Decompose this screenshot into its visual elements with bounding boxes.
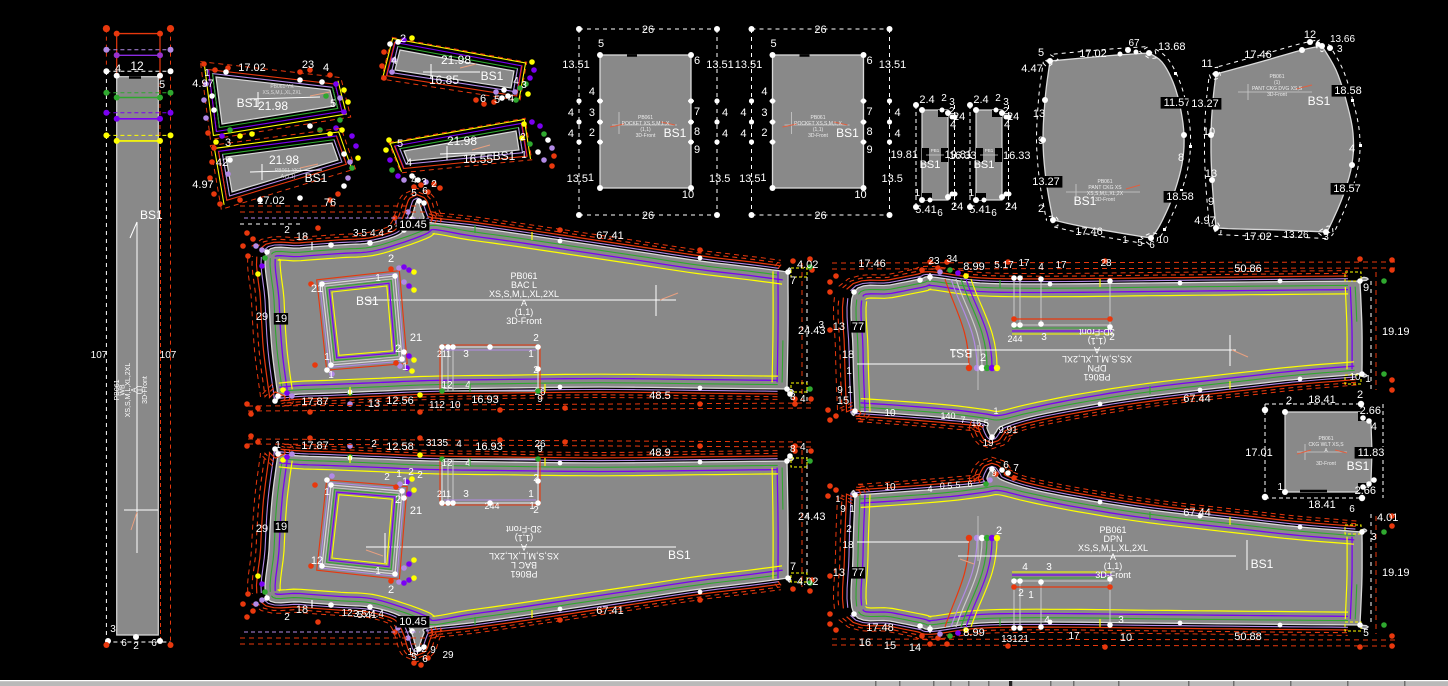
- svg-text:13: 13: [1033, 108, 1045, 120]
- svg-text:17.46: 17.46: [1075, 226, 1103, 238]
- svg-text:3: 3: [818, 320, 824, 331]
- svg-text:9: 9: [840, 504, 846, 515]
- svg-text:67: 67: [1128, 38, 1140, 49]
- svg-text:2: 2: [1038, 203, 1044, 215]
- svg-text:3: 3: [1046, 562, 1052, 573]
- svg-text:10: 10: [884, 408, 896, 419]
- svg-text:3D-Front: 3D-Front: [142, 376, 149, 404]
- svg-text:211: 211: [437, 349, 451, 359]
- svg-text:26: 26: [642, 24, 654, 36]
- svg-text:1: 1: [275, 440, 281, 451]
- svg-text:6: 6: [694, 55, 700, 67]
- svg-text:2: 2: [995, 93, 1001, 104]
- svg-text:BS1: BS1: [1347, 459, 1370, 473]
- svg-text:12: 12: [441, 458, 453, 469]
- svg-text:2: 2: [371, 439, 377, 450]
- svg-text:13.51: 13.51: [879, 59, 907, 71]
- svg-text:1: 1: [528, 489, 534, 500]
- svg-text:17.01: 17.01: [1245, 447, 1273, 459]
- svg-text:BS1: BS1: [1308, 94, 1331, 108]
- svg-text:29: 29: [256, 523, 268, 535]
- svg-text:19.19: 19.19: [1382, 326, 1410, 338]
- svg-text:6: 6: [1149, 240, 1155, 251]
- svg-text:3: 3: [463, 489, 469, 500]
- svg-text:4: 4: [1349, 143, 1355, 155]
- svg-text:4.97: 4.97: [1194, 215, 1215, 227]
- svg-text:244: 244: [1007, 334, 1022, 344]
- svg-text:7: 7: [694, 106, 700, 118]
- svg-text:8.99: 8.99: [963, 627, 984, 639]
- svg-text:4: 4: [722, 107, 728, 119]
- svg-text:24: 24: [951, 201, 963, 213]
- svg-text:19.81: 19.81: [944, 149, 972, 161]
- svg-text:67.44: 67.44: [1183, 393, 1211, 405]
- svg-text:18: 18: [842, 540, 854, 551]
- svg-text:10: 10: [1349, 372, 1361, 383]
- svg-text:1: 1: [204, 68, 210, 79]
- svg-text:4: 4: [761, 86, 767, 98]
- svg-text:5.41: 5.41: [915, 204, 936, 216]
- svg-text:23: 23: [928, 256, 940, 267]
- svg-text:77: 77: [852, 567, 864, 579]
- svg-text:1: 1: [521, 150, 527, 161]
- svg-text:12: 12: [341, 608, 353, 619]
- svg-text:34: 34: [946, 254, 958, 265]
- svg-text:14: 14: [909, 642, 921, 654]
- svg-text:4: 4: [1022, 562, 1028, 573]
- svg-text:4: 4: [115, 63, 121, 75]
- svg-text:3: 3: [521, 80, 527, 91]
- svg-text:5: 5: [598, 38, 604, 50]
- svg-text:4: 4: [589, 86, 595, 98]
- svg-text:BS1: BS1: [140, 208, 163, 222]
- svg-text:2: 2: [980, 352, 986, 364]
- svg-text:BS1: BS1: [305, 171, 328, 185]
- svg-text:28: 28: [1100, 258, 1112, 269]
- svg-text:BS1: BS1: [974, 159, 995, 171]
- svg-text:16.93: 16.93: [475, 441, 503, 453]
- svg-text:13.27: 13.27: [1032, 176, 1060, 188]
- svg-text:13.5: 13.5: [567, 173, 588, 185]
- svg-text:5: 5: [770, 38, 776, 50]
- svg-text:A (1,1): A (1,1): [281, 174, 296, 180]
- svg-text:5.41: 5.41: [969, 204, 990, 216]
- svg-text:17.02: 17.02: [1079, 48, 1107, 60]
- svg-text:18: 18: [296, 231, 308, 243]
- svg-text:6: 6: [121, 638, 127, 649]
- svg-text:26: 26: [814, 210, 826, 222]
- svg-text:2.66: 2.66: [1360, 405, 1381, 417]
- svg-text:2: 2: [284, 612, 290, 623]
- svg-text:1: 1: [846, 366, 852, 377]
- svg-text:6: 6: [480, 93, 486, 105]
- svg-text:3: 3: [1337, 44, 1343, 55]
- svg-text:5: 5: [1137, 238, 1143, 249]
- svg-text:21.98: 21.98: [269, 153, 299, 167]
- svg-text:4: 4: [800, 394, 806, 405]
- svg-text:2: 2: [941, 93, 947, 104]
- svg-text:67.44: 67.44: [1183, 507, 1211, 519]
- svg-text:2: 2: [387, 224, 393, 235]
- svg-text:4.01: 4.01: [1377, 512, 1398, 524]
- svg-text:16.55: 16.55: [463, 152, 493, 166]
- svg-text:112: 112: [429, 400, 445, 411]
- svg-text:4: 4: [895, 107, 901, 119]
- svg-text:17.02: 17.02: [257, 195, 285, 207]
- svg-text:BS1: BS1: [493, 149, 516, 163]
- svg-text:3: 3: [225, 137, 231, 149]
- svg-text:12: 12: [441, 380, 453, 391]
- svg-text:4: 4: [722, 128, 728, 140]
- svg-text:3: 3: [761, 107, 767, 119]
- svg-text:1: 1: [1122, 235, 1128, 246]
- svg-text:3D-Front: 3D-Front: [636, 133, 656, 139]
- svg-text:5.17: 5.17: [994, 260, 1014, 271]
- svg-text:3D-Front: 3D-Front: [808, 133, 828, 139]
- svg-text:1: 1: [968, 188, 974, 199]
- svg-text:9: 9: [1038, 135, 1044, 147]
- svg-text:21: 21: [311, 283, 323, 295]
- svg-text:2: 2: [421, 644, 427, 655]
- svg-text:1: 1: [1028, 590, 1034, 601]
- svg-text:6: 6: [991, 208, 997, 219]
- svg-text:19: 19: [275, 313, 287, 325]
- svg-text:9.91: 9.91: [998, 425, 1018, 436]
- svg-text:13.66: 13.66: [1330, 34, 1355, 45]
- svg-text:4: 4: [391, 55, 397, 67]
- svg-text:13.51: 13.51: [562, 59, 590, 71]
- svg-text:1: 1: [760, 172, 766, 184]
- svg-text:BS1: BS1: [1251, 557, 1274, 571]
- svg-text:17.02: 17.02: [238, 62, 266, 74]
- svg-text:1: 1: [849, 504, 855, 515]
- svg-text:4.97: 4.97: [192, 179, 213, 191]
- svg-text:17.48: 17.48: [866, 622, 894, 634]
- svg-text:2: 2: [431, 179, 437, 190]
- svg-text:17.02: 17.02: [1244, 231, 1272, 243]
- svg-text:21.98: 21.98: [441, 53, 471, 67]
- svg-text:17.87: 17.87: [301, 440, 329, 452]
- svg-text:7: 7: [790, 561, 796, 573]
- svg-text:2: 2: [133, 641, 139, 652]
- svg-text:PB1: PB1: [985, 148, 994, 153]
- svg-text:16.5: 16.5: [971, 418, 989, 428]
- svg-text:26: 26: [814, 24, 826, 36]
- svg-text:5.41: 5.41: [357, 610, 377, 621]
- svg-text:2: 2: [589, 127, 595, 139]
- svg-text:18.41: 18.41: [1308, 499, 1336, 511]
- svg-text:4.02: 4.02: [797, 576, 818, 588]
- svg-text:18.58: 18.58: [1166, 191, 1194, 203]
- svg-text:1: 1: [375, 273, 381, 284]
- svg-text:11: 11: [1201, 58, 1212, 70]
- svg-text:12: 12: [130, 59, 144, 73]
- svg-text:4.02: 4.02: [797, 259, 818, 271]
- svg-text:2: 2: [533, 333, 539, 344]
- svg-text:6: 6: [967, 479, 972, 489]
- svg-text:9: 9: [867, 144, 873, 156]
- svg-text:12.56: 12.56: [386, 395, 414, 407]
- svg-text:6: 6: [422, 186, 428, 197]
- svg-text:1: 1: [375, 566, 381, 577]
- svg-text:29: 29: [442, 650, 454, 661]
- svg-text:13.68: 13.68: [1158, 41, 1186, 53]
- svg-text:107: 107: [91, 350, 108, 361]
- svg-text:3.5: 3.5: [353, 228, 367, 239]
- svg-text:8: 8: [1178, 152, 1184, 164]
- svg-text:18: 18: [842, 349, 854, 361]
- svg-text:17.46: 17.46: [1244, 49, 1272, 61]
- svg-text:6: 6: [1349, 504, 1355, 515]
- svg-text:4: 4: [800, 442, 806, 453]
- svg-text:21.98: 21.98: [447, 134, 477, 148]
- svg-text:10: 10: [1120, 632, 1132, 644]
- svg-text:17: 17: [1018, 258, 1030, 269]
- svg-text:1: 1: [396, 469, 402, 480]
- svg-text:4: 4: [456, 439, 462, 450]
- svg-text:8: 8: [790, 392, 796, 403]
- svg-text:21: 21: [410, 332, 422, 344]
- svg-text:15: 15: [837, 395, 849, 407]
- svg-text:2: 2: [388, 253, 394, 265]
- svg-text:4: 4: [406, 157, 412, 169]
- svg-text:9: 9: [694, 144, 700, 156]
- svg-text:2: 2: [1286, 395, 1292, 407]
- svg-text:PB1: PB1: [931, 148, 940, 153]
- svg-text:11.83: 11.83: [1358, 447, 1385, 459]
- svg-text:4: 4: [895, 128, 901, 140]
- svg-text:107: 107: [160, 350, 177, 361]
- svg-text:7: 7: [1013, 463, 1019, 474]
- svg-text:6: 6: [151, 638, 157, 649]
- svg-text:2: 2: [284, 225, 290, 236]
- svg-text:10.45: 10.45: [399, 219, 427, 231]
- svg-text:13.5: 13.5: [882, 173, 903, 185]
- svg-text:10: 10: [884, 482, 896, 493]
- svg-text:18: 18: [296, 604, 308, 616]
- svg-text:6: 6: [422, 654, 428, 665]
- svg-text:1: 1: [529, 501, 535, 512]
- svg-text:3: 3: [463, 349, 469, 360]
- svg-text:5: 5: [411, 188, 417, 199]
- svg-text:42: 42: [216, 157, 228, 169]
- svg-text:8: 8: [867, 126, 873, 138]
- svg-text:2: 2: [1357, 389, 1363, 401]
- svg-text:50.88: 50.88: [1234, 631, 1262, 643]
- svg-text:3D-Front: 3D-Front: [506, 316, 542, 326]
- svg-text:10: 10: [682, 189, 694, 201]
- svg-text:1: 1: [993, 406, 998, 416]
- svg-text:3: 3: [1118, 615, 1124, 626]
- svg-text:1: 1: [328, 370, 334, 381]
- svg-text:19.81: 19.81: [890, 149, 918, 161]
- svg-text:BS1: BS1: [836, 126, 859, 140]
- svg-text:13.27: 13.27: [1191, 98, 1219, 110]
- svg-text:3: 3: [1323, 232, 1329, 243]
- svg-text:2: 2: [1018, 588, 1024, 599]
- svg-text:17.46: 17.46: [858, 258, 886, 270]
- svg-text:BS1: BS1: [949, 346, 972, 360]
- svg-text:13: 13: [833, 321, 845, 333]
- svg-text:3135: 3135: [426, 438, 449, 449]
- svg-text:24: 24: [1005, 201, 1017, 213]
- svg-text:4: 4: [568, 107, 574, 119]
- svg-text:4: 4: [740, 128, 746, 140]
- svg-text:6: 6: [937, 208, 943, 219]
- svg-text:9: 9: [537, 394, 543, 405]
- svg-text:13.51: 13.51: [735, 59, 763, 71]
- svg-text:2: 2: [846, 524, 852, 535]
- svg-text:5: 5: [1038, 47, 1044, 59]
- svg-text:4.4: 4.4: [370, 228, 384, 239]
- svg-text:76: 76: [324, 197, 336, 209]
- svg-text:3D-Front: 3D-Front: [1267, 92, 1287, 98]
- svg-text:244: 244: [484, 501, 499, 511]
- svg-text:16: 16: [859, 637, 871, 649]
- svg-text:BS1: BS1: [481, 69, 504, 83]
- svg-text:1: 1: [588, 172, 594, 184]
- svg-text:BS1: BS1: [664, 126, 687, 140]
- svg-text:4: 4: [513, 76, 519, 87]
- svg-text:29: 29: [256, 311, 268, 323]
- svg-text:2: 2: [996, 525, 1002, 537]
- svg-text:4: 4: [508, 93, 514, 105]
- svg-text:4: 4: [1038, 262, 1044, 273]
- svg-text:8.99: 8.99: [963, 261, 984, 273]
- svg-text:5: 5: [397, 138, 403, 150]
- svg-text:48.5: 48.5: [649, 390, 670, 402]
- svg-text:1: 1: [835, 494, 840, 504]
- svg-text:13: 13: [368, 398, 380, 410]
- svg-text:1: 1: [324, 352, 330, 363]
- svg-text:3: 3: [1371, 532, 1377, 543]
- svg-text:2.66: 2.66: [1355, 485, 1376, 497]
- svg-text:2: 2: [417, 470, 423, 481]
- svg-text:1: 1: [324, 487, 330, 498]
- svg-text:23: 23: [302, 59, 314, 71]
- svg-text:2: 2: [533, 473, 539, 484]
- svg-text:26: 26: [642, 210, 654, 222]
- svg-text:18.57: 18.57: [1333, 183, 1361, 195]
- svg-text:10: 10: [449, 400, 461, 411]
- svg-text:48.9: 48.9: [649, 447, 670, 459]
- svg-text:5: 5: [330, 98, 336, 110]
- svg-text:13.5: 13.5: [709, 173, 730, 185]
- svg-text:1: 1: [528, 349, 534, 360]
- svg-text:1: 1: [1277, 482, 1283, 493]
- svg-text:5: 5: [159, 79, 165, 91]
- svg-text:4.47: 4.47: [1021, 63, 1042, 75]
- svg-text:12.58: 12.58: [386, 441, 414, 453]
- svg-text:3D-Front: 3D-Front: [1079, 327, 1115, 337]
- svg-text:13.51: 13.51: [706, 59, 734, 71]
- svg-text:10: 10: [1203, 126, 1215, 138]
- svg-text:2: 2: [388, 584, 394, 596]
- svg-text:3: 3: [1041, 332, 1047, 343]
- svg-text:67.41: 67.41: [596, 230, 624, 242]
- svg-text:21.98: 21.98: [258, 99, 288, 113]
- svg-text:9: 9: [537, 444, 543, 455]
- svg-text:17: 17: [1055, 260, 1067, 271]
- svg-text:1: 1: [914, 188, 920, 199]
- svg-text:50.86: 50.86: [1234, 263, 1262, 275]
- svg-text:3D-Front: 3D-Front: [1095, 197, 1115, 203]
- svg-text:16.93: 16.93: [471, 394, 499, 406]
- svg-text:2.4: 2.4: [919, 94, 934, 106]
- svg-text:2: 2: [395, 343, 401, 355]
- svg-text:9: 9: [1208, 196, 1214, 208]
- svg-text:4: 4: [927, 484, 932, 494]
- svg-text:19.19: 19.19: [1382, 567, 1410, 579]
- svg-text:21: 21: [410, 505, 422, 517]
- svg-text:24.43: 24.43: [798, 511, 826, 523]
- svg-text:0.5: 0.5: [940, 481, 953, 491]
- svg-text:6: 6: [867, 55, 873, 67]
- svg-text:3: 3: [589, 107, 595, 119]
- svg-text:1: 1: [402, 476, 408, 488]
- svg-text:9: 9: [430, 645, 436, 656]
- svg-text:4: 4: [950, 119, 956, 131]
- svg-text:4: 4: [568, 128, 574, 140]
- svg-text:3D-Front: 3D-Front: [1316, 461, 1336, 467]
- svg-text:12: 12: [311, 555, 323, 567]
- svg-text:BS1: BS1: [356, 294, 379, 308]
- svg-text:BS1: BS1: [668, 548, 691, 562]
- svg-text:1: 1: [402, 361, 408, 373]
- svg-text:4: 4: [1371, 421, 1377, 433]
- svg-text:1: 1: [1365, 374, 1371, 385]
- svg-text:BS1: BS1: [237, 96, 260, 110]
- svg-text:15: 15: [884, 640, 896, 652]
- svg-text:6: 6: [1003, 460, 1009, 471]
- svg-text:7: 7: [790, 275, 796, 287]
- svg-text:11.57: 11.57: [1164, 97, 1191, 109]
- svg-text:BS1: BS1: [920, 159, 941, 171]
- svg-text:13121: 13121: [1001, 634, 1029, 645]
- svg-text:2: 2: [408, 467, 414, 478]
- svg-text:5: 5: [955, 480, 960, 490]
- svg-text:19: 19: [275, 521, 287, 533]
- svg-text:8: 8: [694, 126, 700, 138]
- svg-text:2: 2: [395, 494, 401, 506]
- svg-text:2.4: 2.4: [973, 94, 988, 106]
- svg-text:17: 17: [1068, 631, 1080, 642]
- svg-text:2: 2: [761, 127, 767, 139]
- svg-text:77: 77: [852, 321, 864, 333]
- svg-text:9: 9: [991, 468, 997, 479]
- svg-text:5: 5: [1363, 628, 1369, 639]
- svg-text:3D-Front: 3D-Front: [506, 524, 542, 534]
- svg-text:4: 4: [1004, 119, 1010, 131]
- svg-text:18.41: 18.41: [1308, 394, 1336, 406]
- svg-text:17.87: 17.87: [301, 396, 329, 408]
- svg-text:10: 10: [1157, 235, 1169, 246]
- svg-text:2: 2: [400, 33, 406, 45]
- svg-text:9: 9: [1363, 282, 1369, 294]
- svg-text:211: 211: [437, 489, 451, 499]
- svg-text:19: 19: [982, 438, 994, 449]
- svg-text:XS,S,M,L,XL,2XL: XS,S,M,L,XL,2XL: [263, 90, 302, 96]
- svg-text:16.85: 16.85: [429, 73, 459, 87]
- svg-text:4: 4: [323, 62, 329, 74]
- svg-text:13: 13: [833, 567, 845, 579]
- svg-text:4: 4: [740, 107, 746, 119]
- svg-text:2: 2: [520, 132, 526, 143]
- svg-text:7: 7: [960, 415, 965, 425]
- svg-text:12: 12: [1304, 29, 1316, 41]
- svg-text:18.58: 18.58: [1334, 85, 1362, 97]
- svg-text:5: 5: [494, 94, 500, 106]
